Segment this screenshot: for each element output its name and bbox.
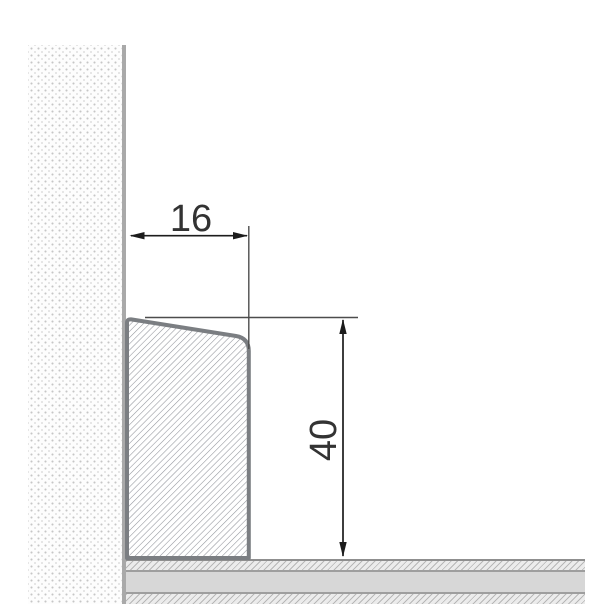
height-dimension-label: 40 [305, 417, 343, 463]
dimension-layer [0, 0, 604, 604]
technical-drawing-canvas: 16 40 [0, 0, 604, 604]
arrow-right-icon [233, 232, 248, 239]
width-dimension-label: 16 [168, 200, 214, 238]
arrow-left-icon [130, 232, 145, 239]
arrow-up-icon [339, 319, 346, 334]
arrow-down-icon [339, 542, 346, 557]
